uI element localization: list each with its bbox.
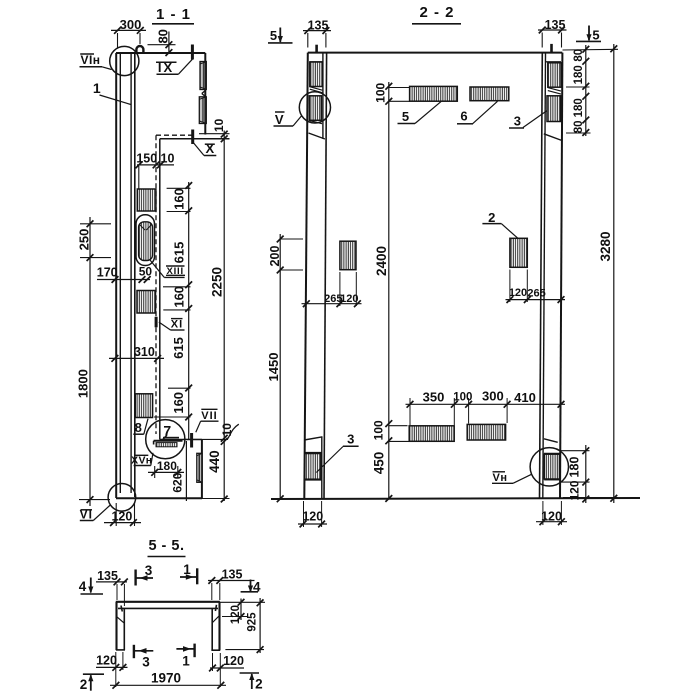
svg-text:1970: 1970 (151, 671, 181, 686)
svg-text:3: 3 (142, 655, 150, 670)
svg-text:1: 1 (183, 562, 191, 577)
svg-text:1 - 1: 1 - 1 (156, 6, 191, 23)
svg-text:620: 620 (170, 472, 184, 492)
svg-text:3280: 3280 (598, 231, 613, 261)
svg-text:4: 4 (79, 579, 87, 594)
svg-text:100: 100 (372, 420, 386, 440)
svg-text:410: 410 (514, 390, 536, 405)
svg-text:160: 160 (172, 188, 187, 210)
svg-text:5: 5 (592, 28, 599, 43)
svg-text:V: V (275, 112, 284, 127)
svg-text:120: 120 (230, 605, 242, 624)
svg-text:135: 135 (222, 568, 243, 582)
svg-text:6: 6 (460, 109, 467, 124)
svg-text:1: 1 (182, 654, 190, 669)
svg-text:2: 2 (80, 677, 88, 692)
svg-text:2250: 2250 (210, 267, 225, 297)
svg-text:3: 3 (514, 114, 521, 129)
svg-text:1: 1 (93, 80, 101, 96)
svg-text:10: 10 (220, 423, 234, 437)
svg-text:120: 120 (223, 654, 244, 668)
svg-text:180: 180 (573, 98, 585, 117)
svg-text:XVн: XVн (131, 455, 152, 467)
svg-text:160: 160 (172, 286, 187, 308)
svg-text:1450: 1450 (266, 353, 281, 382)
svg-text:Vн: Vн (493, 472, 508, 484)
svg-text:100: 100 (373, 82, 387, 102)
svg-text:5: 5 (402, 109, 409, 124)
svg-text:180: 180 (157, 459, 177, 473)
svg-text:310: 310 (134, 345, 155, 359)
svg-text:7: 7 (163, 422, 171, 438)
svg-text:80: 80 (573, 49, 585, 62)
svg-text:615: 615 (171, 337, 186, 359)
svg-text:180: 180 (573, 65, 585, 84)
svg-text:2: 2 (255, 677, 263, 692)
svg-text:5 - 5.: 5 - 5. (148, 538, 184, 554)
svg-text:250: 250 (76, 229, 91, 251)
svg-text:135: 135 (97, 569, 118, 583)
svg-text:300: 300 (482, 389, 504, 404)
svg-text:450: 450 (371, 452, 386, 475)
svg-text:10: 10 (212, 118, 226, 132)
svg-text:170: 170 (97, 266, 118, 280)
svg-text:8: 8 (135, 420, 142, 435)
svg-text:120: 120 (567, 480, 581, 500)
svg-text:440: 440 (207, 450, 222, 473)
svg-text:2: 2 (488, 210, 495, 225)
svg-text:80: 80 (155, 29, 170, 43)
svg-text:925: 925 (247, 612, 259, 632)
svg-text:615: 615 (172, 242, 187, 264)
svg-text:80: 80 (573, 120, 585, 133)
svg-text:3: 3 (145, 563, 153, 578)
svg-text:160: 160 (171, 392, 186, 414)
svg-text:VII: VII (201, 410, 217, 422)
svg-text:3: 3 (347, 432, 354, 447)
svg-text:VIн: VIн (80, 53, 100, 67)
svg-text:350: 350 (423, 389, 445, 404)
svg-text:5: 5 (270, 28, 277, 43)
svg-text:120: 120 (96, 653, 117, 667)
svg-text:180: 180 (567, 457, 581, 478)
svg-text:2400: 2400 (374, 246, 389, 276)
svg-text:1800: 1800 (76, 369, 91, 398)
svg-text:2 - 2: 2 - 2 (419, 4, 454, 21)
svg-text:300: 300 (120, 17, 142, 32)
svg-text:XI: XI (171, 319, 183, 331)
